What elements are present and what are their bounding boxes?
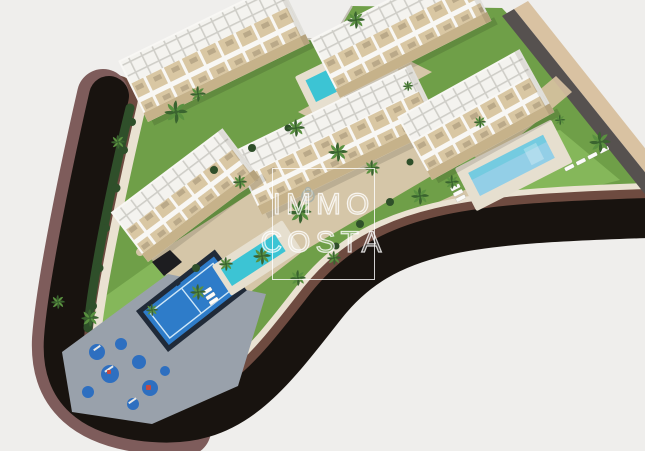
- site-render: [0, 0, 645, 451]
- render-canvas: IMMO COSTA: [0, 0, 645, 451]
